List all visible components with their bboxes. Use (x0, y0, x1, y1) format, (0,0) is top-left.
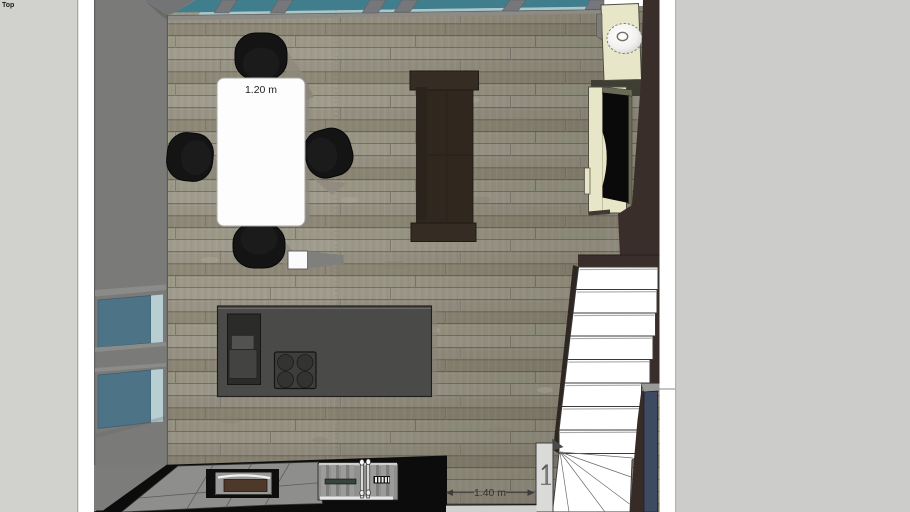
svg-text:1.40 m: 1.40 m (474, 487, 506, 499)
svg-text:Top: Top (2, 2, 14, 9)
svg-text:1.20 m: 1.20 m (245, 84, 277, 96)
